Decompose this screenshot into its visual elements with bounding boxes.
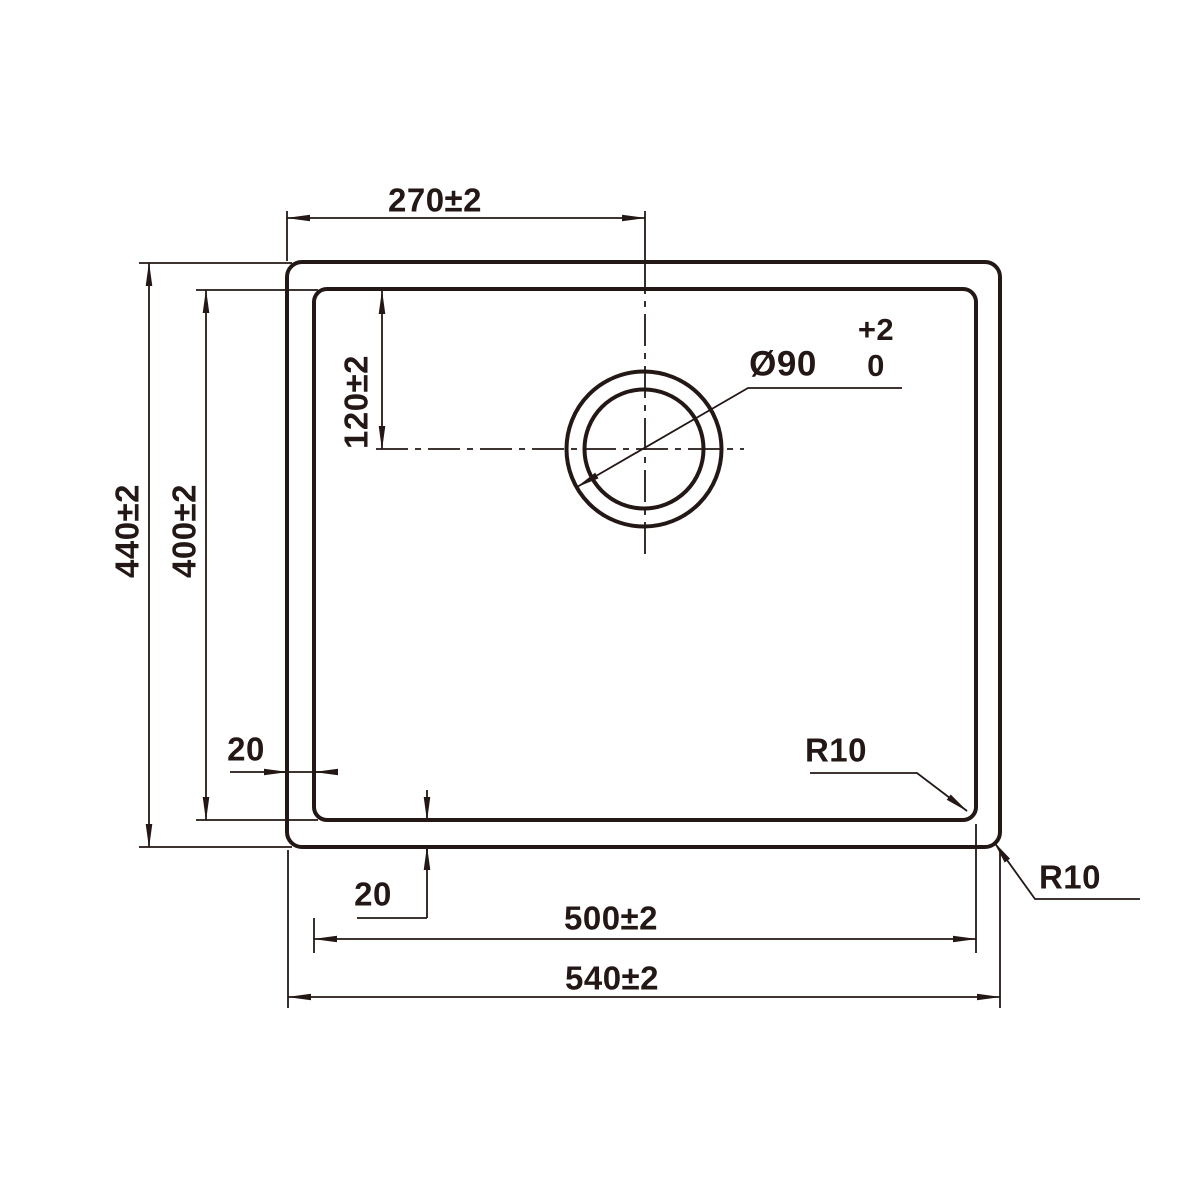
dim-label-500: 500±2	[564, 902, 658, 935]
drain-tolerance-upper: +2	[858, 312, 894, 348]
drain-diameter-leader	[577, 388, 902, 487]
dim-270-linework	[287, 211, 645, 261]
dim-label-r10-outer: R10	[1039, 861, 1101, 894]
dim-label-drain-diameter: Ø90	[749, 347, 817, 382]
dim-label-270: 270±2	[388, 184, 482, 217]
dim-label-540: 540±2	[565, 962, 659, 995]
dim-label-20-left: 20	[227, 733, 265, 766]
dim-label-440: 440±2	[111, 484, 144, 578]
dim-label-r10-inner: R10	[805, 734, 867, 767]
dim-label-20-bottom: 20	[354, 878, 392, 911]
inner-radius-leader	[810, 773, 967, 811]
drain-tolerance-stack: +2 0	[858, 312, 894, 384]
dim-label-120: 120±2	[340, 355, 373, 449]
dim-label-400: 400±2	[168, 484, 201, 578]
drain-tolerance-lower: 0	[867, 348, 885, 384]
drawing-linework	[0, 0, 1200, 1200]
dim-440-linework	[139, 263, 292, 847]
technical-drawing-canvas: 270±2 120±2 440±2 400±2 20 20 500±2 540±…	[0, 0, 1200, 1200]
